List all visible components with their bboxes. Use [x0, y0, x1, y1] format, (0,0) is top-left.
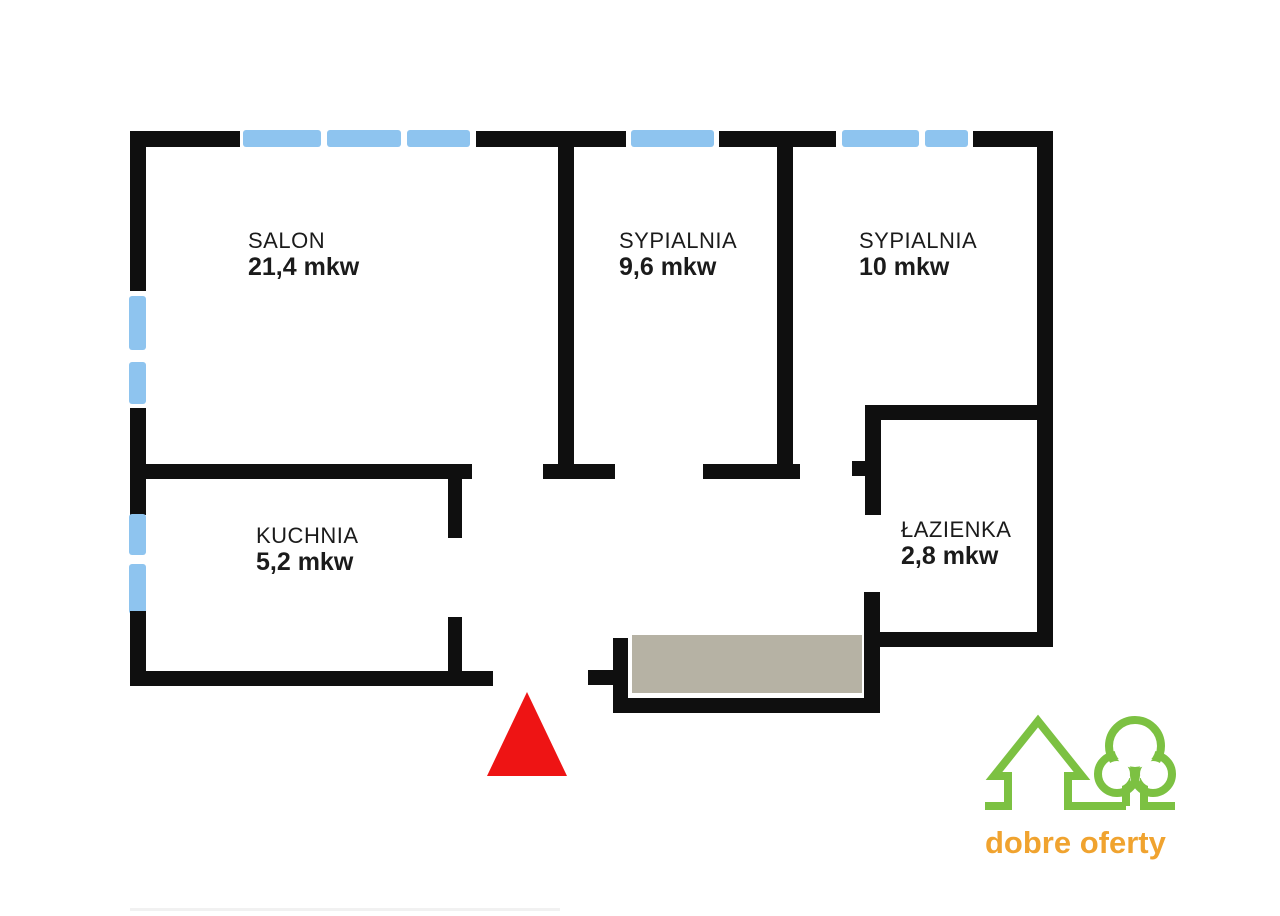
window-top-2 [327, 130, 401, 147]
wall-bathroom-jamb [852, 461, 866, 476]
room-label-salon: SALON 21,4 mkw [248, 229, 359, 280]
room-name: SYPIALNIA [619, 229, 737, 252]
window-left-3 [129, 514, 146, 555]
wall-bathroom-top [865, 405, 1053, 420]
wall-bedroom1-right [777, 131, 793, 479]
wall-left-2 [130, 408, 146, 515]
room-label-lazienka: ŁAZIENKA 2,8 mkw [901, 518, 1011, 569]
wall-bathroom-left-upper [865, 405, 881, 515]
agency-logo: dobre oferty [968, 700, 1193, 860]
room-name: ŁAZIENKA [901, 518, 1011, 541]
window-top-6 [925, 130, 968, 147]
wall-left-1 [130, 131, 146, 291]
room-area: 9,6 mkw [619, 254, 737, 280]
scan-artifact [130, 908, 560, 911]
room-name: SALON [248, 229, 359, 252]
room-label-sypialnia-1: SYPIALNIA 9,6 mkw [619, 229, 737, 280]
wall-salon-bottom [130, 464, 472, 479]
wall-bathroom-left-lower [864, 592, 880, 713]
room-area: 5,2 mkw [256, 549, 359, 575]
room-area: 10 mkw [859, 254, 977, 280]
room-name: KUCHNIA [256, 524, 359, 547]
logo-text: dobre oferty [968, 825, 1193, 861]
wall-balcony-bottom [613, 698, 878, 713]
room-label-sypialnia-2: SYPIALNIA 10 mkw [859, 229, 977, 280]
wall-entrance-stub [588, 670, 615, 685]
room-name: SYPIALNIA [859, 229, 977, 252]
wall-hall-piece [543, 464, 615, 479]
window-top-4 [631, 130, 714, 147]
room-area: 2,8 mkw [901, 543, 1011, 569]
floor-plan: SALON 21,4 mkw SYPIALNIA 9,6 mkw SYPIALN… [0, 0, 1280, 916]
wall-kitchen-right-upper [448, 478, 462, 538]
window-left-1 [129, 296, 146, 350]
room-area: 21,4 mkw [248, 254, 359, 280]
window-top-3 [407, 130, 470, 147]
wall-top-1 [130, 131, 240, 147]
house-and-tree-icon [968, 700, 1193, 812]
wall-right [1037, 131, 1053, 647]
room-label-kuchnia: KUCHNIA 5,2 mkw [256, 524, 359, 575]
window-left-2 [129, 362, 146, 404]
entrance-arrow-icon [487, 692, 567, 776]
wall-bedroom1-left [558, 131, 574, 479]
wall-bathroom-bottom [865, 632, 1053, 647]
window-left-4 [129, 564, 146, 614]
window-top-1 [243, 130, 321, 147]
wall-kitchen-bottom [130, 671, 493, 686]
window-top-5 [842, 130, 919, 147]
balcony-floor [632, 635, 862, 693]
wall-top-2 [476, 131, 626, 147]
